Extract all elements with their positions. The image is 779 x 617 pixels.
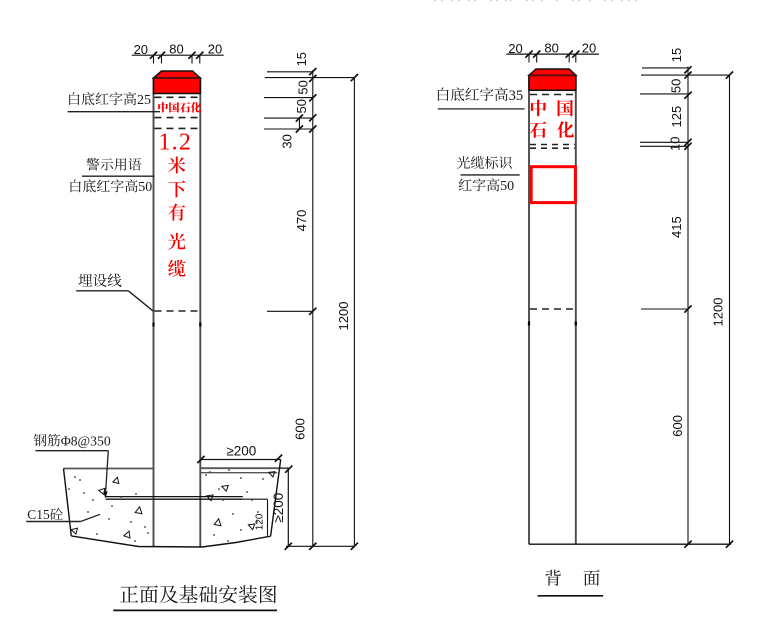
svg-text:125: 125: [669, 106, 684, 128]
svg-text:470: 470: [294, 210, 309, 232]
svg-text:≥200: ≥200: [226, 444, 256, 459]
svg-text:50: 50: [500, 179, 514, 194]
svg-text:80: 80: [169, 42, 183, 57]
svg-text:35: 35: [509, 88, 524, 104]
svg-text:415: 415: [669, 216, 684, 238]
svg-text:50: 50: [668, 79, 683, 93]
svg-text:1.2: 1.2: [158, 130, 192, 156]
svg-text:1200: 1200: [336, 302, 351, 331]
svg-text:15: 15: [294, 52, 309, 66]
svg-text:50: 50: [296, 80, 311, 94]
svg-text:50: 50: [138, 180, 152, 195]
svg-text:20: 20: [208, 42, 222, 57]
svg-text:≥200: ≥200: [271, 493, 286, 523]
svg-text:15: 15: [669, 48, 684, 62]
svg-text:C15: C15: [27, 507, 50, 522]
svg-text:20: 20: [508, 41, 522, 56]
svg-text:600: 600: [293, 418, 308, 440]
svg-text:120: 120: [255, 513, 266, 530]
svg-text:1200: 1200: [711, 298, 726, 327]
svg-text:20: 20: [582, 41, 596, 56]
svg-text:600: 600: [670, 415, 685, 437]
svg-text:20: 20: [134, 42, 148, 57]
svg-text:10: 10: [667, 137, 682, 151]
svg-text:Φ8@350: Φ8@350: [61, 433, 111, 448]
svg-text:30: 30: [279, 134, 294, 148]
svg-text:50: 50: [294, 99, 309, 113]
svg-text:25: 25: [137, 93, 151, 108]
svg-text:80: 80: [544, 41, 558, 56]
